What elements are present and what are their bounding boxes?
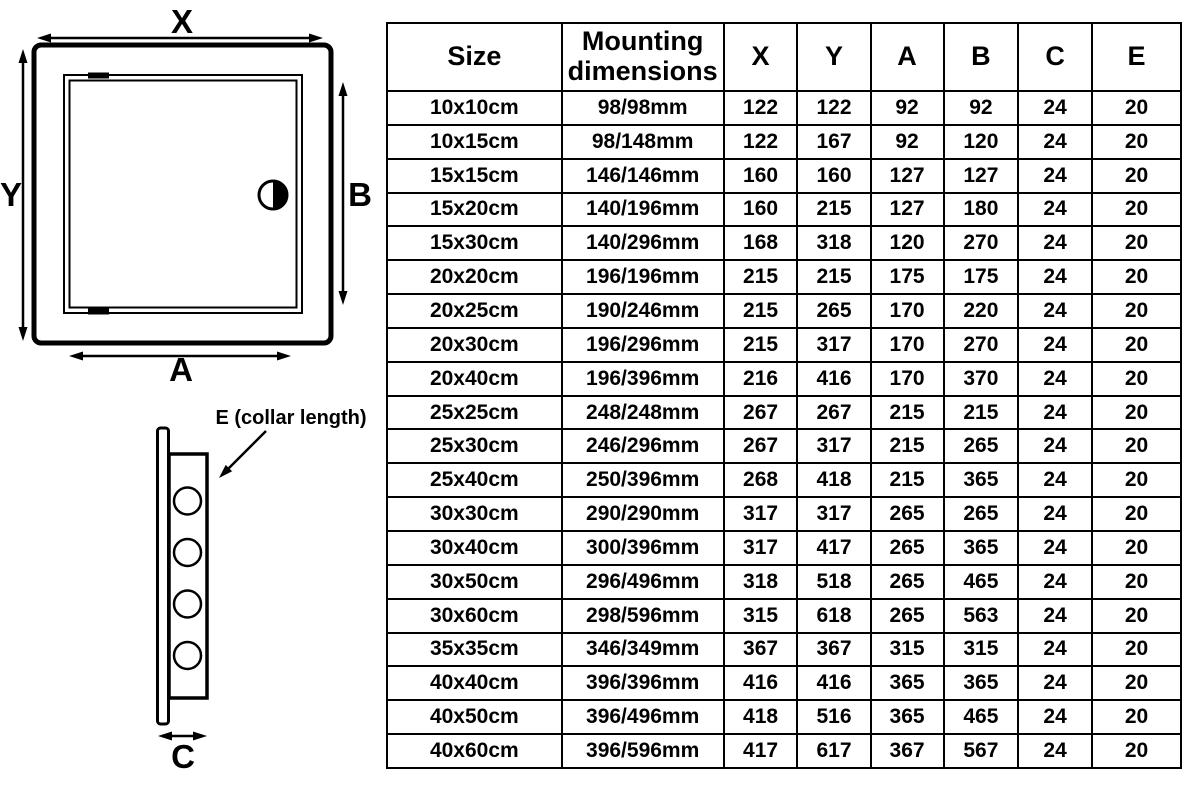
table-cell: 365 [871,666,944,700]
table-row: 30x60cm298/596mm3156182655632420 [387,599,1181,633]
collar-hole [174,539,201,566]
table-cell: 416 [797,362,870,396]
arrow-head [339,82,348,96]
table-cell: 317 [797,429,870,463]
table-cell: 365 [944,531,1019,565]
table-cell: 24 [1018,260,1092,294]
table-cell: 315 [944,633,1019,667]
table-cell: 265 [871,599,944,633]
table-cell: 248/248mm [562,396,724,430]
b-dimension-label: B [348,176,372,213]
table-cell: 396/596mm [562,734,724,768]
table-cell: 215 [944,396,1019,430]
header-mounting-dimensions: Mounting dimensions [562,23,724,91]
table-row: 20x40cm196/396mm2164161703702420 [387,362,1181,396]
table-body: 10x10cm98/98mm1221229292242010x15cm98/14… [387,91,1181,768]
table-cell: 215 [724,294,798,328]
table-cell: 20x40cm [387,362,562,396]
table-row: 30x50cm296/496mm3185182654652420 [387,565,1181,599]
table-cell: 24 [1018,362,1092,396]
table-cell: 15x20cm [387,193,562,227]
table-cell: 24 [1018,497,1092,531]
table-cell: 290/290mm [562,497,724,531]
arrow-head [19,49,28,63]
table-cell: 20 [1092,125,1181,159]
table-cell: 146/146mm [562,159,724,193]
table-cell: 196/296mm [562,328,724,362]
dimensions-table: Size Mounting dimensions X Y A B C E 10x… [386,22,1182,769]
b-dimension-arrow [339,82,348,305]
table-cell: 170 [871,294,944,328]
collar-hole [174,642,201,669]
table-row: 15x15cm146/146mm1601601271272420 [387,159,1181,193]
table-cell: 24 [1018,700,1092,734]
arrow-head [309,34,323,43]
table-cell: 127 [944,159,1019,193]
table-cell: 318 [724,565,798,599]
table-cell: 175 [944,260,1019,294]
table-cell: 298/596mm [562,599,724,633]
header-x: X [724,23,798,91]
table-cell: 15x15cm [387,159,562,193]
table-cell: 24 [1018,734,1092,768]
table-cell: 20 [1092,226,1181,260]
table-cell: 300/396mm [562,531,724,565]
arrow-head [19,327,28,341]
table-cell: 20 [1092,429,1181,463]
dimension-diagram: X Y A B E (collar length [0,0,385,797]
header-c: C [1018,23,1092,91]
table-cell: 465 [944,700,1019,734]
table-cell: 24 [1018,226,1092,260]
table-cell: 24 [1018,463,1092,497]
table-cell: 215 [797,193,870,227]
table-cell: 40x50cm [387,700,562,734]
table-cell: 30x50cm [387,565,562,599]
table-cell: 175 [871,260,944,294]
table-cell: 567 [944,734,1019,768]
table-row: 15x30cm140/296mm1683181202702420 [387,226,1181,260]
a-dimension-label: A [169,351,193,388]
table-cell: 127 [871,159,944,193]
table-cell: 370 [944,362,1019,396]
table-cell: 365 [871,700,944,734]
table-cell: 267 [797,396,870,430]
table-cell: 396/396mm [562,666,724,700]
table-cell: 367 [724,633,798,667]
table-cell: 30x30cm [387,497,562,531]
table-cell: 317 [724,497,798,531]
table-cell: 20 [1092,599,1181,633]
table-cell: 215 [871,463,944,497]
table-cell: 40x40cm [387,666,562,700]
c-dimension-label: C [171,738,195,775]
table-row: 40x40cm396/396mm4164163653652420 [387,666,1181,700]
table-cell: 24 [1018,633,1092,667]
collar-pointer-arrow [219,431,266,478]
table-cell: 20 [1092,633,1181,667]
table-cell: 518 [797,565,870,599]
access-panel-spec-sheet: X Y A B E (collar length [0,0,1200,797]
table-cell: 24 [1018,193,1092,227]
table-cell: 10x15cm [387,125,562,159]
table-cell: 617 [797,734,870,768]
table-cell: 15x30cm [387,226,562,260]
table-row: 35x35cm346/349mm3673673153152420 [387,633,1181,667]
table-cell: 220 [944,294,1019,328]
table-cell: 168 [724,226,798,260]
table-cell: 140/296mm [562,226,724,260]
table-cell: 120 [871,226,944,260]
table-cell: 618 [797,599,870,633]
arrow-head [69,352,83,361]
table-cell: 270 [944,328,1019,362]
table-cell: 265 [944,497,1019,531]
table-cell: 196/396mm [562,362,724,396]
table-cell: 160 [797,159,870,193]
table-cell: 215 [871,429,944,463]
y-dimension-label: Y [0,176,22,213]
collar-hole [174,591,201,618]
table-cell: 20 [1092,700,1181,734]
table-cell: 216 [724,362,798,396]
table-cell: 215 [724,260,798,294]
table-cell: 20 [1092,734,1181,768]
table-cell: 24 [1018,91,1092,125]
table-cell: 98/98mm [562,91,724,125]
table-cell: 246/296mm [562,429,724,463]
table-cell: 140/196mm [562,193,724,227]
table-cell: 160 [724,193,798,227]
table-cell: 365 [944,463,1019,497]
header-b: B [944,23,1019,91]
header-a: A [871,23,944,91]
table-cell: 122 [724,125,798,159]
table-cell: 20 [1092,497,1181,531]
table-cell: 160 [724,159,798,193]
table-cell: 170 [871,328,944,362]
table-cell: 24 [1018,328,1092,362]
table-row: 10x15cm98/148mm122167921202420 [387,125,1181,159]
table-cell: 24 [1018,396,1092,430]
table-cell: 122 [724,91,798,125]
table-row: 25x30cm246/296mm2673172152652420 [387,429,1181,463]
table-cell: 24 [1018,599,1092,633]
table-cell: 516 [797,700,870,734]
table-cell: 318 [797,226,870,260]
table-cell: 120 [944,125,1019,159]
table-cell: 20 [1092,193,1181,227]
table-cell: 30x60cm [387,599,562,633]
table-cell: 30x40cm [387,531,562,565]
table-cell: 215 [871,396,944,430]
arrow-head [193,732,207,741]
table-cell: 25x25cm [387,396,562,430]
table-row: 30x40cm300/396mm3174172653652420 [387,531,1181,565]
arrow-head [339,291,348,305]
table-cell: 317 [797,497,870,531]
arrow-head [277,352,291,361]
table-cell: 20 [1092,159,1181,193]
table-cell: 40x60cm [387,734,562,768]
table-cell: 24 [1018,159,1092,193]
table-cell: 92 [871,91,944,125]
table-cell: 35x35cm [387,633,562,667]
table-row: 25x40cm250/396mm2684182153652420 [387,463,1181,497]
table-cell: 270 [944,226,1019,260]
table-row: 40x50cm396/496mm4185163654652420 [387,700,1181,734]
table-row: 25x25cm248/248mm2672672152152420 [387,396,1181,430]
table-cell: 20 [1092,294,1181,328]
table-cell: 265 [871,565,944,599]
door-hinge-bottom [88,309,109,315]
table-cell: 25x40cm [387,463,562,497]
table-cell: 24 [1018,429,1092,463]
table-cell: 98/148mm [562,125,724,159]
front-view [34,45,331,343]
table-cell: 24 [1018,531,1092,565]
table-row: 20x25cm190/246mm2152651702202420 [387,294,1181,328]
table-cell: 416 [724,666,798,700]
table-cell: 20 [1092,531,1181,565]
table-cell: 167 [797,125,870,159]
table-cell: 20 [1092,666,1181,700]
table-row: 20x20cm196/196mm2152151751752420 [387,260,1181,294]
header-y: Y [797,23,870,91]
table-row: 40x60cm396/596mm4176173675672420 [387,734,1181,768]
collar-length-label: E (collar length) [215,407,366,429]
flange-profile [158,428,169,724]
table-cell: 122 [797,91,870,125]
table-cell: 416 [797,666,870,700]
table-cell: 265 [797,294,870,328]
table-row: 15x20cm140/196mm1602151271802420 [387,193,1181,227]
table-header-row: Size Mounting dimensions X Y A B C E [387,23,1181,91]
table-cell: 317 [797,328,870,362]
table-cell: 190/246mm [562,294,724,328]
side-view [158,428,208,724]
table-cell: 250/396mm [562,463,724,497]
table-cell: 265 [871,497,944,531]
table-cell: 367 [871,734,944,768]
table-row: 10x10cm98/98mm12212292922420 [387,91,1181,125]
table-cell: 10x10cm [387,91,562,125]
table-cell: 24 [1018,294,1092,328]
table-cell: 196/196mm [562,260,724,294]
table-cell: 20 [1092,91,1181,125]
table-cell: 180 [944,193,1019,227]
table-cell: 296/496mm [562,565,724,599]
arrow-head [158,732,172,741]
table-cell: 417 [797,531,870,565]
table-cell: 25x30cm [387,429,562,463]
table-cell: 20x20cm [387,260,562,294]
table-cell: 315 [871,633,944,667]
table-cell: 20x25cm [387,294,562,328]
table-cell: 92 [871,125,944,159]
table-cell: 20x30cm [387,328,562,362]
table-cell: 20 [1092,463,1181,497]
table-cell: 367 [797,633,870,667]
header-size: Size [387,23,562,91]
collar-hole [174,488,201,515]
table-cell: 215 [724,328,798,362]
table-cell: 346/349mm [562,633,724,667]
table-cell: 215 [797,260,870,294]
table-cell: 268 [724,463,798,497]
table-cell: 24 [1018,565,1092,599]
table-cell: 24 [1018,125,1092,159]
header-e: E [1092,23,1181,91]
arrow-head [37,34,51,43]
table-cell: 20 [1092,396,1181,430]
door-hinge-top [88,73,109,79]
table-cell: 563 [944,599,1019,633]
table-cell: 317 [724,531,798,565]
table-cell: 20 [1092,328,1181,362]
table-cell: 267 [724,396,798,430]
table-row: 20x30cm196/296mm2153171702702420 [387,328,1181,362]
table-cell: 20 [1092,362,1181,396]
table-cell: 24 [1018,666,1092,700]
table-cell: 20 [1092,260,1181,294]
table-cell: 127 [871,193,944,227]
table-cell: 417 [724,734,798,768]
table-cell: 418 [724,700,798,734]
table-cell: 265 [871,531,944,565]
table-cell: 170 [871,362,944,396]
x-dimension-label: X [171,3,193,40]
table-cell: 265 [944,429,1019,463]
table-cell: 267 [724,429,798,463]
arrow-line [227,431,266,470]
table-cell: 465 [944,565,1019,599]
table-cell: 418 [797,463,870,497]
table-cell: 396/496mm [562,700,724,734]
table-cell: 92 [944,91,1019,125]
table-cell: 365 [944,666,1019,700]
table-cell: 315 [724,599,798,633]
table-cell: 20 [1092,565,1181,599]
table-row: 30x30cm290/290mm3173172652652420 [387,497,1181,531]
